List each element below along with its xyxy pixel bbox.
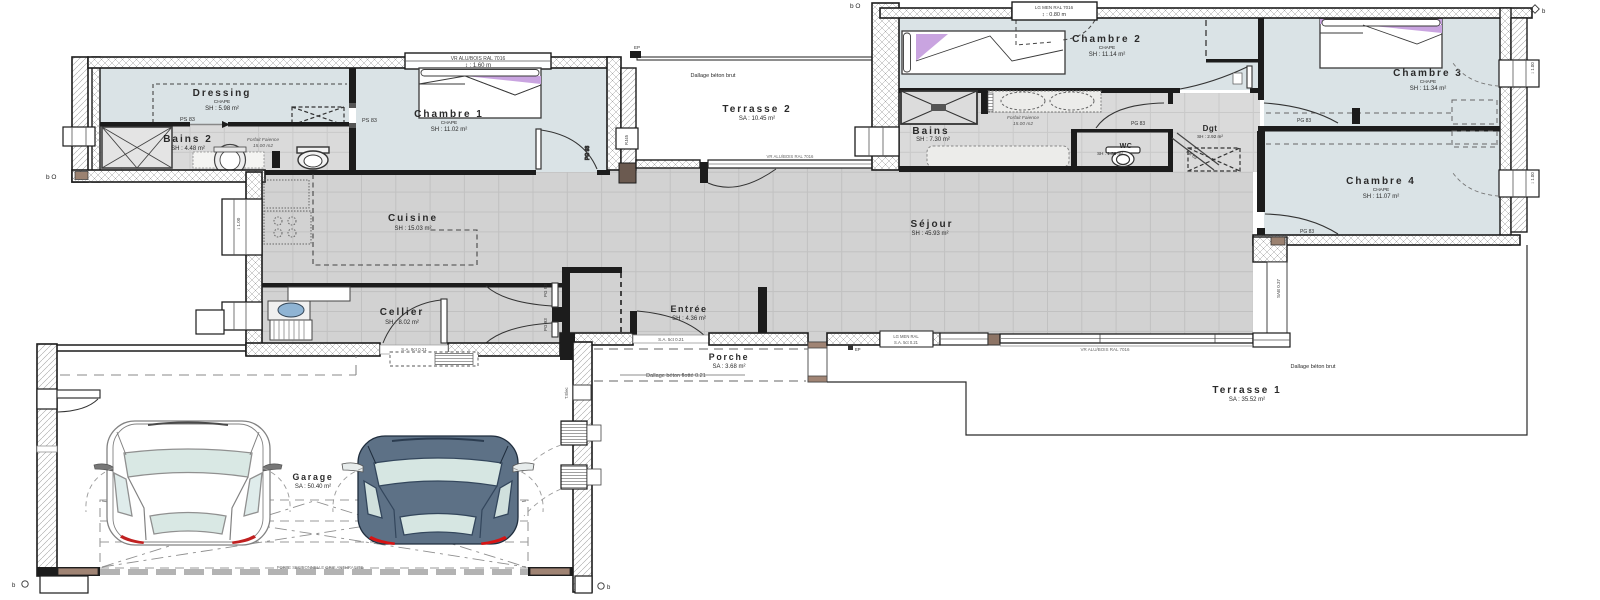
svg-text:↕ 1.00: ↕ 1.00: [1530, 62, 1535, 74]
svg-text:Bains 2: Bains 2: [163, 134, 213, 145]
svg-text:SH : 8.02 m²: SH : 8.02 m²: [385, 320, 419, 326]
svg-text:SA : 35.52 m²: SA : 35.52 m²: [1229, 397, 1265, 403]
svg-text:WC: WC: [1120, 143, 1133, 150]
svg-text:CHAPE: CHAPE: [1373, 187, 1390, 193]
svg-text:SH : 11.34 m²: SH : 11.34 m²: [1410, 86, 1447, 92]
svg-text:Cellier: Cellier: [380, 307, 425, 318]
svg-text:b O: b O: [46, 174, 56, 181]
svg-text:Chambre 1: Chambre 1: [414, 109, 484, 120]
svg-text:SH : 1.36 m²: SH : 1.36 m²: [1097, 151, 1123, 156]
svg-text:PG 93: PG 93: [585, 146, 591, 160]
svg-text:CHAPE: CHAPE: [1099, 45, 1116, 51]
svg-text:LG MEN RAL: LG MEN RAL: [893, 334, 919, 339]
svg-text:Chambre 4: Chambre 4: [1346, 176, 1416, 187]
svg-text:PS 83: PS 83: [362, 118, 377, 124]
svg-text:VR ALU/BOIS RAL 7016: VR ALU/BOIS RAL 7016: [451, 56, 506, 62]
svg-text:S.A. 9ct 0.21: S.A. 9ct 0.21: [401, 347, 427, 352]
svg-text:VR ALU/BOIS RAL 7016: VR ALU/BOIS RAL 7016: [1080, 347, 1130, 352]
svg-text:SH : 11.07 m²: SH : 11.07 m²: [1363, 194, 1400, 200]
svg-text:↕ 1.00: ↕ 1.00: [1530, 172, 1535, 184]
svg-text:Dallage béton flotté 0.21: Dallage béton flotté 0.21: [646, 373, 706, 379]
svg-text:PG 93: PG 93: [543, 318, 548, 331]
svg-text:T.Elec: T.Elec: [564, 386, 569, 399]
svg-text:Dressing: Dressing: [193, 88, 252, 99]
svg-text:Terrasse 2: Terrasse 2: [722, 104, 791, 115]
svg-text:SH : 4.48 m²: SH : 4.48 m²: [171, 146, 205, 152]
svg-text:Cuisine: Cuisine: [388, 213, 438, 224]
svg-text:SA : 3.68 m²: SA : 3.68 m²: [712, 364, 745, 370]
svg-text:SH : 5.98 m²: SH : 5.98 m²: [205, 106, 239, 112]
svg-text:Dallage béton brut: Dallage béton brut: [1291, 364, 1336, 370]
svg-text:Chambre 3: Chambre 3: [1393, 68, 1463, 79]
svg-text:SH : 15.03 m²: SH : 15.03 m²: [394, 226, 431, 232]
svg-text:↕ 1.00: ↕ 1.00: [236, 217, 241, 230]
svg-text:CHAPE: CHAPE: [441, 120, 458, 126]
svg-text:PG 83: PG 83: [1300, 229, 1314, 235]
svg-text:SH : 11.02 m²: SH : 11.02 m²: [431, 127, 468, 133]
svg-text:VR ALU/BOIS RAL 7016: VR ALU/BOIS RAL 7016: [767, 154, 815, 159]
svg-text:S.A. 5ct 0.21: S.A. 5ct 0.21: [658, 337, 684, 342]
svg-text:SH : 2.92 m²: SH : 2.92 m²: [1197, 134, 1223, 139]
svg-text:CHAPE: CHAPE: [1420, 79, 1437, 85]
svg-text:SH : 7.30 m²: SH : 7.30 m²: [916, 137, 950, 143]
svg-text:SH : 11.14 m²: SH : 11.14 m²: [1089, 52, 1126, 58]
svg-text:Entrée: Entrée: [670, 304, 707, 314]
svg-text:Dallage béton brut: Dallage béton brut: [691, 73, 736, 79]
svg-text:PG 83: PG 83: [1297, 118, 1311, 124]
svg-text:15.00 m2: 15.00 m2: [253, 143, 273, 149]
svg-text:Terrasse 1: Terrasse 1: [1212, 385, 1281, 396]
svg-text:15.00 m2: 15.00 m2: [1013, 121, 1033, 127]
svg-text:Porche: Porche: [709, 352, 750, 362]
svg-text:S.A. 5ct 0.21: S.A. 5ct 0.21: [894, 340, 919, 345]
svg-text:↕ : 0.80 m: ↕ : 0.80 m: [1042, 12, 1067, 18]
svg-text:Forfait Faience: Forfait Faience: [247, 137, 279, 143]
svg-text:Forfait Faience: Forfait Faience: [1007, 115, 1039, 121]
svg-text:SAB 0.37: SAB 0.37: [1276, 278, 1281, 298]
svg-text:PORTE SECTIONNELLE GRIS ANTHRA: PORTE SECTIONNELLE GRIS ANTHRACITE: [277, 565, 364, 570]
svg-text:Dgt: Dgt: [1203, 124, 1218, 133]
svg-text:Bains: Bains: [912, 126, 949, 137]
svg-text:EP: EP: [855, 347, 861, 352]
svg-text:SA : 50.40 m²: SA : 50.40 m²: [295, 484, 331, 490]
svg-text:EP: EP: [634, 45, 640, 50]
svg-text:b O: b O: [850, 3, 860, 10]
svg-text:Chambre 2: Chambre 2: [1072, 34, 1142, 45]
svg-text:CHAPE: CHAPE: [214, 99, 231, 105]
svg-text:Séjour: Séjour: [910, 219, 953, 230]
svg-text:Garage: Garage: [292, 472, 333, 482]
svg-text:PG 83: PG 83: [1131, 121, 1145, 127]
svg-text:SH : 45.93 m²: SH : 45.93 m²: [911, 231, 948, 237]
svg-text:LG MEN RAL 7016: LG MEN RAL 7016: [1035, 5, 1074, 10]
svg-text:PS 83: PS 83: [180, 117, 195, 123]
svg-text:RJ45: RJ45: [624, 134, 629, 145]
svg-text:PG 93: PG 93: [543, 284, 548, 297]
svg-text:SA : 10.45 m²: SA : 10.45 m²: [739, 116, 775, 122]
